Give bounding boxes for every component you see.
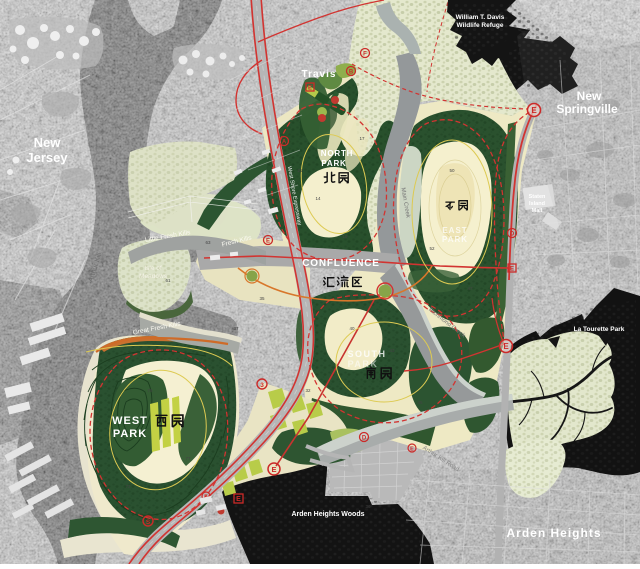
svg-text:EAST: EAST [442,226,467,235]
svg-text:Meadows: Meadows [139,273,168,280]
svg-text:Mall: Mall [532,208,543,214]
svg-text:D: D [362,436,367,442]
svg-text:32: 32 [305,388,311,393]
svg-text:17: 17 [359,136,365,141]
svg-text:43: 43 [389,348,395,353]
svg-text:D: D [510,232,515,238]
svg-text:77: 77 [185,456,191,461]
svg-text:PARK: PARK [348,359,379,369]
svg-text:40: 40 [349,326,355,331]
svg-text:Jersey: Jersey [26,150,68,165]
svg-text:50: 50 [449,168,455,173]
svg-text:52: 52 [429,246,435,251]
svg-text:35: 35 [259,296,265,301]
svg-text:La Tourette Park: La Tourette Park [574,326,625,333]
svg-text:75: 75 [147,388,153,393]
svg-text:F: F [363,52,367,58]
svg-text:NORTH: NORTH [321,149,353,158]
svg-text:Island: Island [529,201,545,207]
svg-text:New: New [577,89,602,103]
svg-text:E: E [410,447,414,453]
svg-text:36: 36 [365,504,371,509]
svg-text:E: E [266,239,270,245]
svg-text:New: New [34,135,62,150]
svg-text:E: E [271,465,276,474]
svg-text:19: 19 [342,234,348,239]
svg-text:E: E [503,342,509,351]
svg-text:E: E [531,106,537,115]
svg-text:WEST: WEST [112,415,148,427]
svg-text:21: 21 [297,168,303,173]
svg-text:45: 45 [417,400,423,405]
svg-text:Arden Heights Woods: Arden Heights Woods [292,511,365,518]
svg-text:Arden Heights: Arden Heights [506,526,601,540]
svg-text:A: A [282,140,287,146]
svg-text:S: S [146,519,151,526]
svg-text:E: E [510,267,514,273]
svg-text:Wildlife Refuge: Wildlife Refuge [457,22,504,29]
svg-text:PARK: PARK [442,235,468,244]
svg-text:Travis: Travis [302,69,337,80]
svg-text:PARK: PARK [321,159,346,168]
svg-text:B: B [349,70,354,76]
svg-text:73: 73 [125,484,131,489]
svg-text:47: 47 [467,286,473,291]
svg-text:55: 55 [497,206,503,211]
svg-text:Isle of: Isle of [144,265,162,272]
svg-text:Staten: Staten [529,194,546,200]
svg-text:E: E [308,86,312,92]
svg-text:3: 3 [260,382,264,389]
svg-text:William T. Davis: William T. Davis [456,14,505,21]
svg-text:14: 14 [315,196,321,201]
svg-text:63: 63 [205,240,211,245]
svg-text:CONFLUENCE: CONFLUENCE [302,258,379,269]
svg-text:E: E [236,496,241,503]
svg-text:Springville: Springville [556,102,618,116]
svg-text:37: 37 [233,326,239,331]
svg-text:PARK: PARK [113,428,147,440]
svg-text:SOUTH: SOUTH [348,349,387,359]
